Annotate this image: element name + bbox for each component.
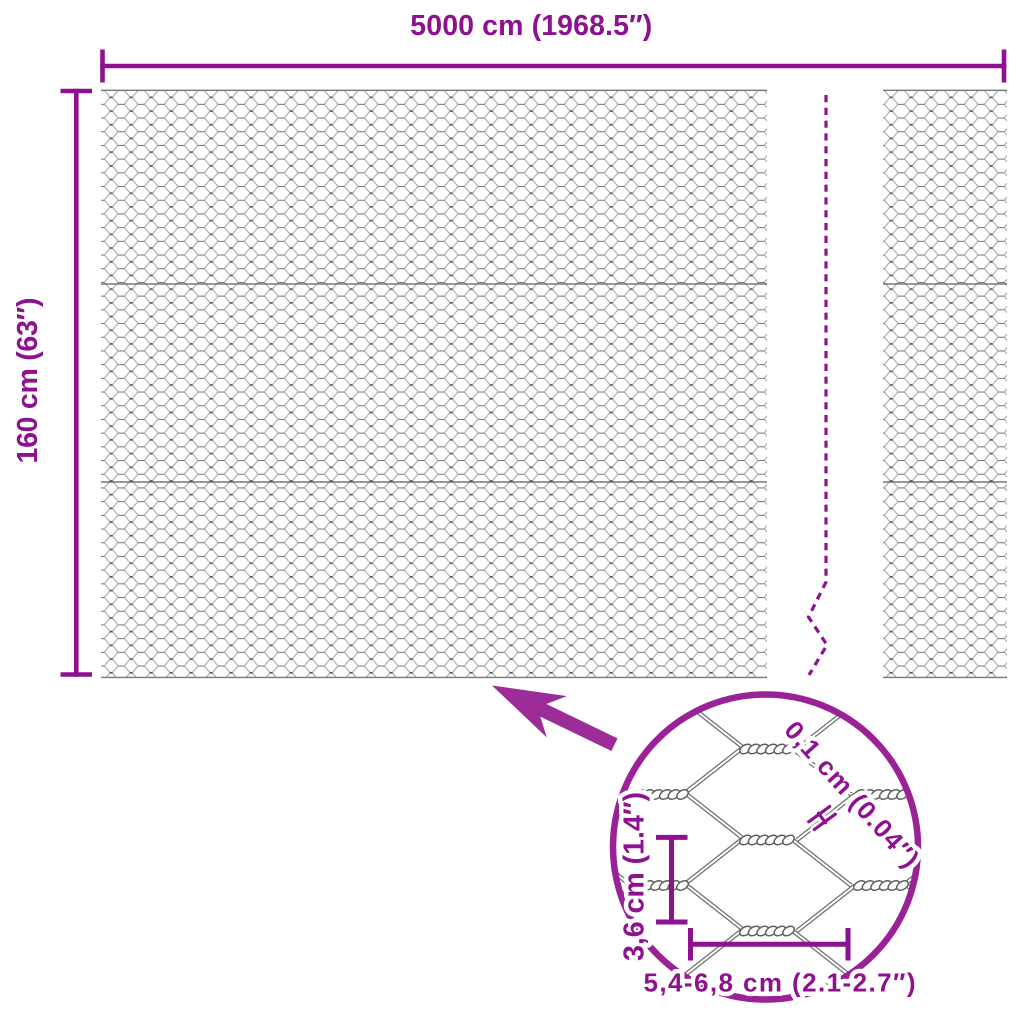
svg-text:3,6 cm (1.4″): 3,6 cm (1.4″) [619,792,651,961]
svg-text:5000 cm (1968.5″): 5000 cm (1968.5″) [410,10,652,42]
svg-text:5,4-6,8 cm (2.1-2.7″): 5,4-6,8 cm (2.1-2.7″) [644,967,916,997]
svg-text:160 cm (63″): 160 cm (63″) [12,298,44,464]
